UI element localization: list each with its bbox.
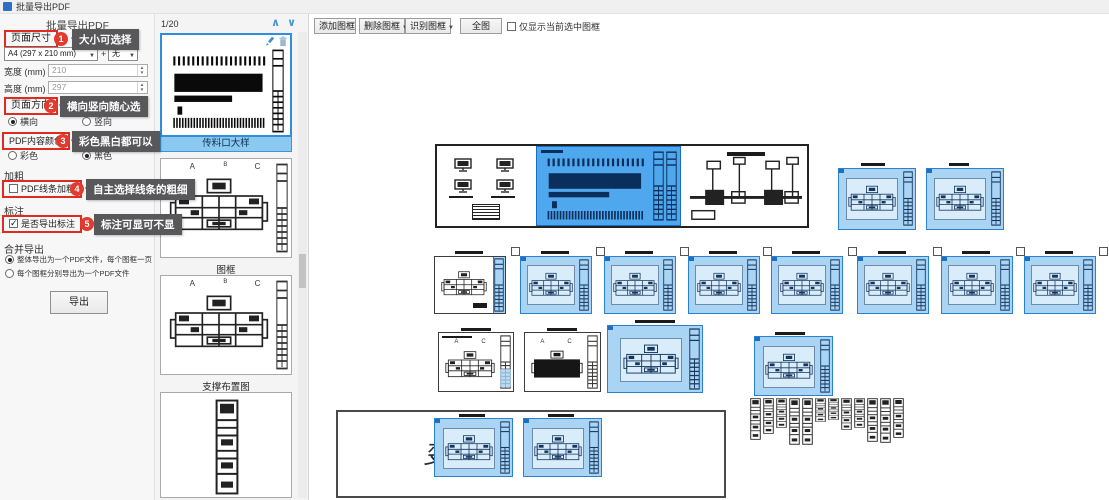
- schedule-strip-drawing: [828, 398, 839, 420]
- thumbnail-item-4[interactable]: [160, 392, 292, 498]
- orientation-tooltip: 横向竖向随心选: [60, 96, 148, 117]
- floor-plan-drawing: [866, 267, 910, 303]
- trash-icon[interactable]: [278, 36, 288, 47]
- floor-plan-drawing: [765, 348, 813, 386]
- monitor-detail-drawing: [495, 158, 515, 172]
- app-icon: [3, 2, 12, 11]
- plus-label: +: [101, 49, 106, 59]
- drawing-sheet-large[interactable]: [435, 144, 809, 228]
- selected-frame-elevation[interactable]: [536, 146, 681, 226]
- radio-icon: [8, 117, 17, 126]
- selected-frame[interactable]: [520, 256, 592, 314]
- step-badge-4: 4: [70, 182, 84, 196]
- thumbnail-1-label[interactable]: 传料口大样: [160, 137, 292, 152]
- selected-frame[interactable]: [607, 325, 703, 393]
- floor-plan-drawing: [441, 265, 487, 303]
- floor-plan-drawing: [534, 430, 582, 467]
- cad-elevation-drawing: [541, 153, 651, 223]
- title-block-drawing: [747, 259, 757, 311]
- drawing-frame[interactable]: AC: [438, 332, 514, 392]
- window-title: 批量导出PDF: [16, 0, 70, 13]
- title-block-drawing: [276, 280, 288, 370]
- title-block-drawing: [991, 171, 1001, 226]
- selected-frame[interactable]: [604, 256, 676, 314]
- title-block-drawing: [500, 421, 510, 474]
- detail-panel-piping: [683, 146, 809, 226]
- cad-elevation-drawing: [167, 50, 272, 132]
- page-size-tooltip: 大小可选择: [72, 29, 139, 50]
- step-badge-1: 1: [54, 32, 68, 46]
- checkbox-icon[interactable]: [9, 184, 18, 193]
- radio-color-label: 彩色: [20, 149, 38, 162]
- height-value: 297: [52, 82, 66, 92]
- schedule-strip-drawing: [215, 399, 239, 495]
- thumbnail-3-label[interactable]: 支撑布置图: [160, 379, 292, 393]
- radio-icon: [5, 269, 14, 278]
- hatched-block-drawing: [472, 204, 500, 220]
- schedule-strip-drawing: [815, 398, 826, 422]
- chevron-down-icon[interactable]: ∨: [287, 16, 296, 29]
- title-block-drawing: [1083, 259, 1093, 311]
- piping-diagram-drawing: [683, 148, 809, 224]
- spinner-icon[interactable]: ▲▼: [137, 65, 146, 76]
- page-indicator: 1/20: [161, 19, 179, 29]
- step-badge-5: 5: [80, 217, 94, 231]
- monitor-detail-drawing: [453, 179, 473, 193]
- drawing-frame[interactable]: [434, 256, 506, 314]
- merge-option-1-label: 整体导出为一个PDF文件，每个图框一页: [17, 254, 152, 265]
- radio-landscape-label: 横向: [20, 115, 38, 128]
- title-block-drawing: [666, 151, 677, 221]
- radio-color[interactable]: 彩色: [8, 149, 38, 162]
- add-frame-button[interactable]: 添加图框: [314, 18, 356, 34]
- pdf-color-tooltip: 彩色黑白都可以: [72, 131, 160, 152]
- monitor-detail-drawing: [495, 179, 515, 193]
- schedule-strip-drawing: [776, 398, 787, 428]
- detail-panel-monitors: [439, 146, 534, 226]
- schedule-strip-drawing: [750, 398, 761, 440]
- chevron-down-icon: ▼: [129, 50, 135, 62]
- radio-icon: [8, 151, 17, 160]
- floor-plan-drawing: [613, 267, 657, 303]
- title-block-drawing: [1000, 259, 1010, 311]
- paper-size-value: A4 (297 x 210 mm): [8, 49, 76, 58]
- title-block-drawing: [579, 259, 589, 311]
- floor-plan-drawing: [950, 267, 994, 303]
- schedule-strip-drawing: [841, 398, 852, 430]
- title-block-drawing: [276, 163, 288, 253]
- chevron-down-icon: ▼: [89, 50, 95, 62]
- floor-plan-drawing: [445, 345, 495, 385]
- width-label: 宽度 (mm): [4, 65, 46, 78]
- edit-pencil-icon[interactable]: [264, 36, 275, 47]
- height-input[interactable]: 297 ▲▼: [48, 81, 148, 94]
- title-block-drawing: [589, 421, 599, 474]
- merge-option-2-label: 每个图框分别导出为一个PDF文件: [17, 268, 130, 279]
- checkbox-checked-icon[interactable]: [9, 219, 18, 228]
- only-selected-checkbox[interactable]: 仅显示当前选中图框: [507, 20, 600, 33]
- title-block-drawing: [820, 339, 830, 393]
- floor-plan-drawing: [780, 267, 824, 303]
- floor-plan-drawing: [1033, 267, 1077, 303]
- selected-frame[interactable]: [434, 418, 513, 477]
- floor-plan-drawing: [529, 267, 573, 303]
- spinner-icon[interactable]: ▲▼: [137, 82, 146, 93]
- width-input[interactable]: 210 ▲▼: [48, 64, 148, 77]
- width-value: 210: [52, 65, 66, 75]
- schedule-strip-drawing: [802, 398, 813, 445]
- title-block-drawing: [830, 259, 840, 311]
- selected-frame[interactable]: [688, 256, 760, 314]
- title-block-drawing: [272, 49, 284, 133]
- floor-plan-solid-drawing: [531, 345, 583, 385]
- selected-frame[interactable]: [838, 168, 916, 230]
- title-block-drawing: [916, 259, 926, 311]
- bold-tooltip: 自主选择线条的粗细: [86, 179, 195, 200]
- annotation-tooltip: 标注可显可不显: [94, 214, 182, 235]
- only-selected-label: 仅显示当前选中图框: [519, 20, 600, 33]
- annotation-checkbox-row[interactable]: 是否导出标注: [2, 215, 82, 233]
- selected-frame[interactable]: [857, 256, 929, 314]
- checkbox-icon[interactable]: [507, 22, 516, 31]
- full-view-button[interactable]: 全图: [460, 18, 502, 34]
- title-block-drawing: [587, 335, 598, 389]
- scrollbar-thumb[interactable]: [299, 254, 306, 288]
- radio-merge-single-file[interactable]: 整体导出为一个PDF文件，每个图框一页: [5, 254, 152, 265]
- floor-plan-drawing: [936, 180, 984, 218]
- batch-export-pdf-window: 批量导出PDF 批量导出PDF 页面尺寸 1 大小可选择 A4 (297 x 2…: [0, 0, 1109, 500]
- chevron-up-icon[interactable]: ∧: [271, 16, 280, 29]
- schedule-strip-drawing: [789, 398, 800, 445]
- thumbnail-item-2[interactable]: A B C: [160, 158, 292, 258]
- step-badge-2: 2: [44, 99, 58, 113]
- thumbnail-panel: 1/20 ∧ ∨ 传料口大样 A B C: [155, 14, 308, 500]
- thumbnail-item-1[interactable]: [160, 33, 292, 137]
- floor-plan-drawing: [623, 340, 679, 380]
- title-block-drawing: [903, 171, 913, 226]
- radio-icon: [82, 117, 91, 126]
- step-badge-3: 3: [56, 134, 70, 148]
- monitor-detail-drawing: [453, 158, 473, 172]
- floor-plan-drawing: [169, 288, 269, 358]
- title-block-drawing: [494, 258, 504, 312]
- schedule-strip-drawing: [854, 398, 865, 428]
- delete-frame-button[interactable]: 删除图框▼: [359, 18, 405, 34]
- recognize-frame-button[interactable]: 识别图框▼: [405, 18, 451, 34]
- thumbnail-scrollbar[interactable]: [298, 32, 307, 498]
- drawing-frame[interactable]: AC: [524, 332, 601, 392]
- title-block-drawing: [689, 328, 700, 390]
- height-label: 高度 (mm): [4, 82, 46, 95]
- selected-frame[interactable]: [941, 256, 1013, 314]
- floor-plan-drawing: [848, 180, 896, 218]
- selected-frame[interactable]: [926, 168, 1004, 230]
- title-block-drawing: [653, 151, 664, 221]
- schedule-strip-drawing: [893, 398, 904, 438]
- bold-label: PDF线条加粗: [21, 184, 75, 194]
- page-size-label: 页面尺寸: [4, 30, 58, 48]
- drawing-canvas[interactable]: 添加图框 删除图框▼ 识别图框▼ 全图 仅显示当前选中图框: [308, 14, 1109, 500]
- selected-frame[interactable]: [754, 336, 833, 396]
- window-titlebar: 批量导出PDF: [0, 0, 1109, 14]
- selected-frame[interactable]: [523, 418, 602, 477]
- floor-plan-drawing: [697, 267, 741, 303]
- radio-icon: [5, 255, 14, 264]
- thumbnail-item-3[interactable]: A B C: [160, 275, 292, 375]
- export-button[interactable]: 导出: [50, 291, 108, 314]
- floor-plan-drawing: [445, 430, 493, 467]
- preset-value: 无: [112, 49, 120, 58]
- selected-frame[interactable]: [771, 256, 843, 314]
- schedule-strip-drawing: [763, 398, 774, 434]
- settings-panel: 批量导出PDF 页面尺寸 1 大小可选择 A4 (297 x 210 mm) ▼…: [0, 14, 155, 500]
- schedule-strip-drawing: [867, 398, 878, 442]
- chevron-down-icon: ▼: [448, 25, 454, 31]
- radio-icon: [82, 151, 91, 160]
- thumbnail-2-label[interactable]: 图框: [160, 262, 292, 276]
- radio-landscape[interactable]: 横向: [8, 115, 38, 128]
- radio-merge-separate-files[interactable]: 每个图框分别导出为一个PDF文件: [5, 268, 130, 279]
- title-block-drawing: [663, 259, 673, 311]
- annotation-label: 是否导出标注: [21, 219, 75, 229]
- selected-frame[interactable]: [1024, 256, 1096, 314]
- schedule-strip-drawing: [880, 398, 891, 443]
